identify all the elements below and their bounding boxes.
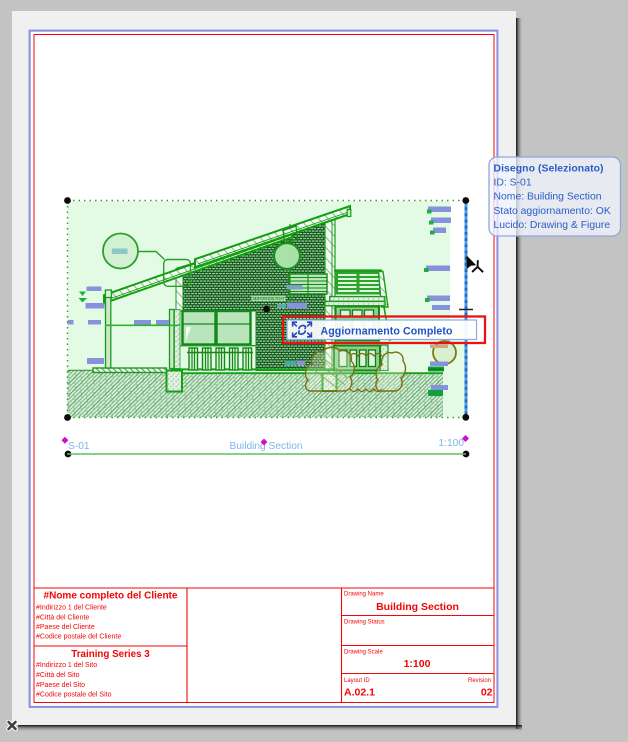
svg-text:#Paese del Cliente: #Paese del Cliente [36,624,95,631]
svg-text:#Codice postale del Sito: #Codice postale del Sito [36,692,112,699]
svg-text:Training Series 3: Training Series 3 [71,649,150,660]
svg-text:ID: S-01: ID: S-01 [494,178,532,189]
svg-text:Drawing Status: Drawing Status [344,620,385,626]
svg-text:#Indirizzo 1 del Cliente: #Indirizzo 1 del Cliente [36,605,107,612]
svg-text:Aggiornamento Completo: Aggiornamento Completo [321,326,454,338]
svg-text:Building Section: Building Section [376,601,459,613]
svg-text:Stato aggiornamento: OK: Stato aggiornamento: OK [494,206,611,217]
svg-text:1:100: 1:100 [439,438,465,449]
svg-text:Lucido: Drawing & Figure: Lucido: Drawing & Figure [494,220,611,231]
svg-text:#Città del Cliente: #Città del Cliente [36,615,89,622]
svg-text:Layout ID: Layout ID [344,678,370,684]
svg-text:#Codice postale del Cliente: #Codice postale del Cliente [36,634,121,641]
svg-text:#Città del Sito: #Città del Sito [36,672,80,679]
svg-text:02: 02 [481,687,493,699]
svg-text:NDP.OF.DOS.TOAT: NDP.OF.DOS.TOAT [253,296,285,301]
svg-text:1:100: 1:100 [404,658,431,670]
svg-text:S-01: S-01 [68,441,90,452]
svg-text:Drawing Scale: Drawing Scale [344,650,383,656]
svg-text:#Indirizzo 1 del Sito: #Indirizzo 1 del Sito [36,662,97,669]
svg-text:#Paese del Sito: #Paese del Sito [36,682,85,689]
svg-text:Nome: Building Section: Nome: Building Section [494,192,602,203]
svg-text:Revision: Revision [468,678,491,684]
svg-text:Disegno (Selezionato): Disegno (Selezionato) [494,164,604,175]
svg-text:A.02.1: A.02.1 [344,687,375,699]
svg-text:#Nome completo del Cliente: #Nome completo del Cliente [44,591,178,602]
svg-text:Drawing Name: Drawing Name [344,592,384,598]
